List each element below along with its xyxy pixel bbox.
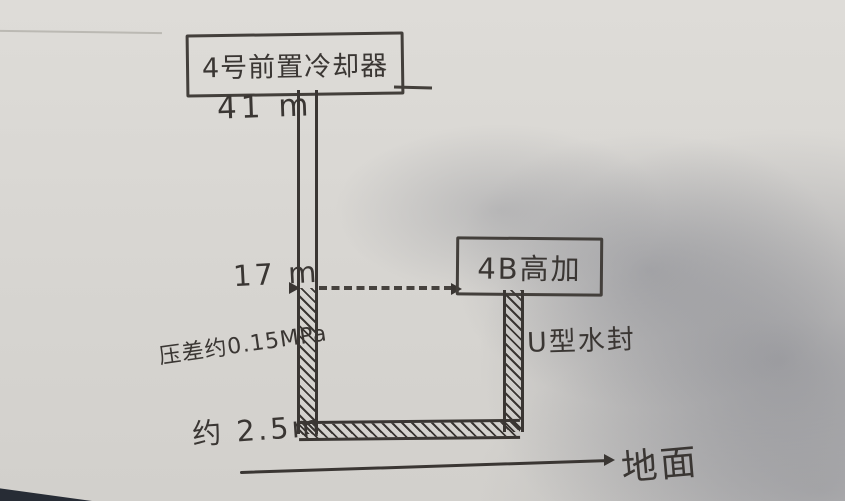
pipe-right-hatched bbox=[503, 290, 524, 432]
pipe-bottom-hatched bbox=[299, 419, 520, 441]
paper-photo-background: 4号前置冷却器 41 m 17 m 4B高加 压差约0.15MPa U型水封 约… bbox=[0, 0, 845, 501]
dashed-level-line bbox=[319, 286, 452, 290]
ground-line-arrow-icon bbox=[604, 454, 615, 466]
photo-corner-dark-edge bbox=[0, 487, 92, 501]
heater-label: 4B高加 bbox=[477, 245, 582, 288]
ground-line bbox=[240, 459, 608, 474]
ground-label: 地面 bbox=[619, 433, 701, 492]
heater-box: 4B高加 bbox=[456, 236, 604, 296]
u-seal-label: U型水封 bbox=[526, 317, 636, 360]
height-2-5m-label: 约 2.5m bbox=[191, 402, 324, 453]
paper-crease bbox=[0, 30, 162, 34]
cooler-label: 4号前置冷却器 bbox=[202, 44, 389, 86]
